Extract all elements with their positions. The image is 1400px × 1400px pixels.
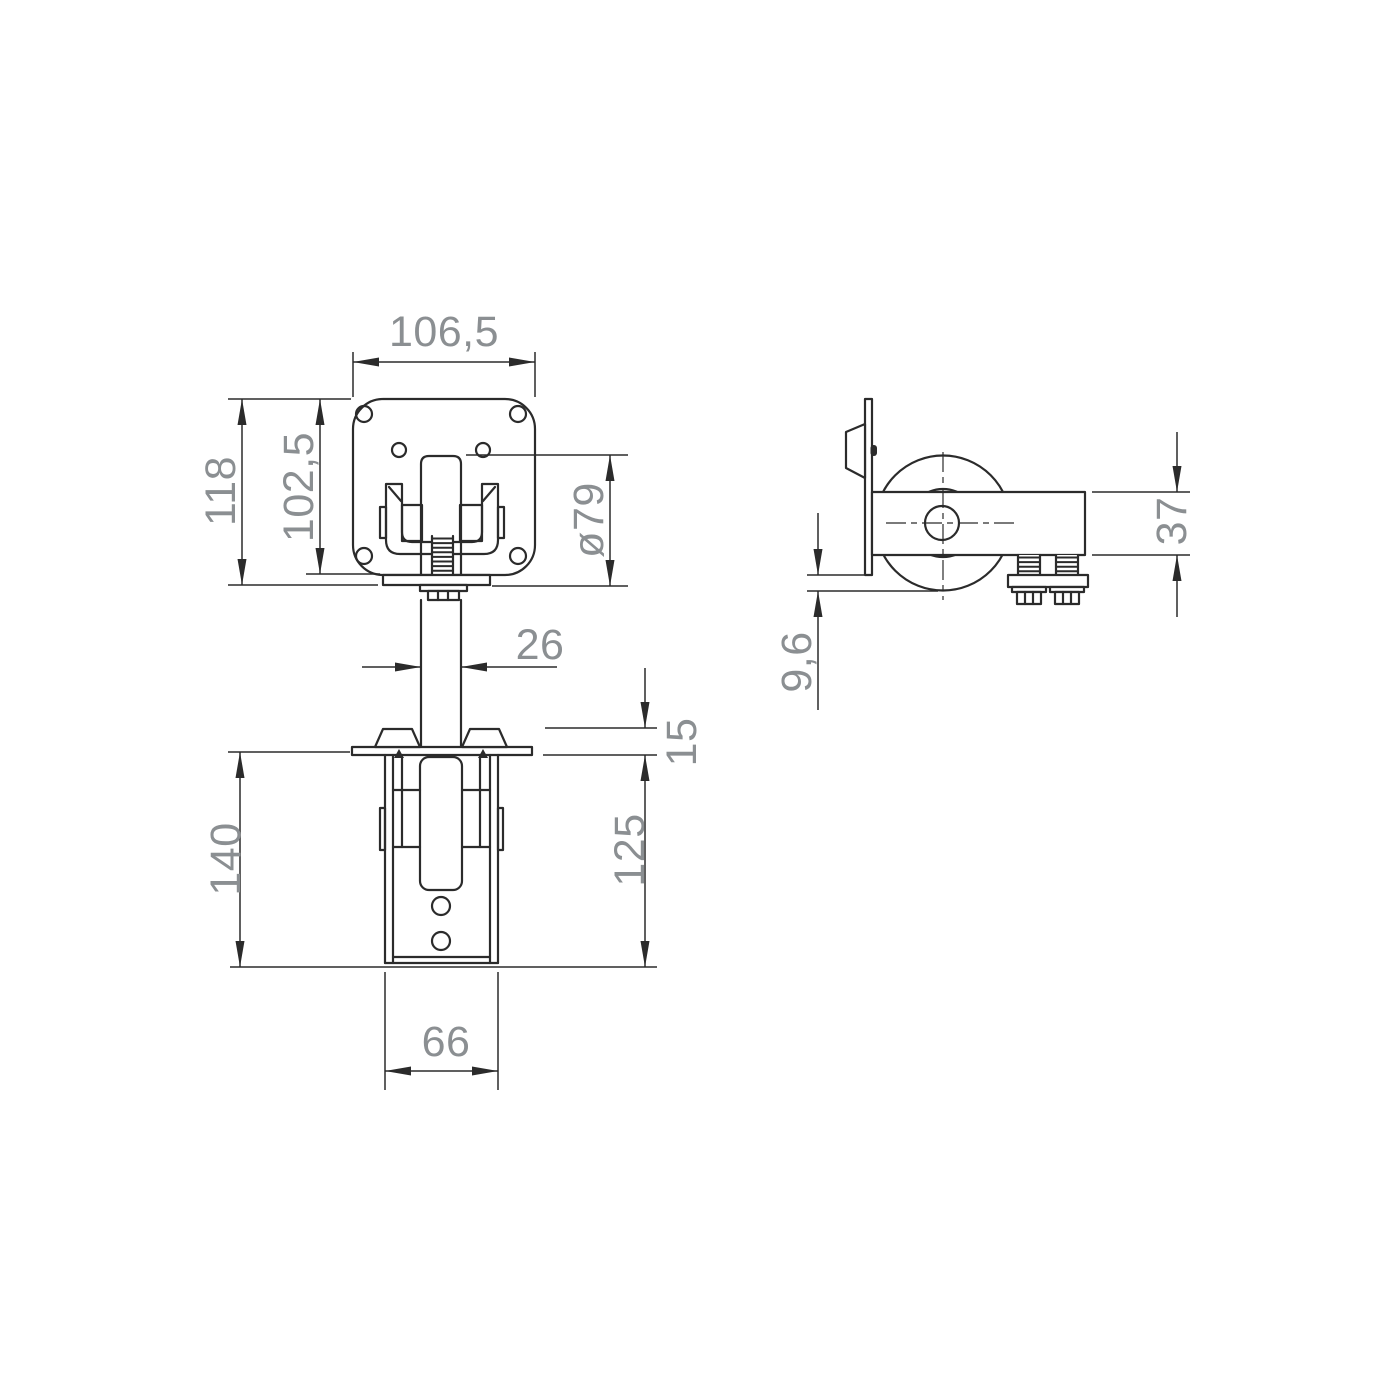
- base-plate: [352, 747, 532, 755]
- front-view: [353, 399, 535, 600]
- hex-nut: [428, 591, 459, 600]
- stud-bolts: [1018, 555, 1078, 575]
- technical-drawing: 106,5 118 102,5 ø79 26: [0, 0, 1400, 1400]
- dim-bottom-overall-height-label: 140: [202, 822, 250, 895]
- roller-section-lines: [393, 757, 490, 847]
- weld-mark: [871, 445, 878, 456]
- dim-roller-diameter-label: ø79: [565, 482, 613, 558]
- dim-stem-width-label: 26: [516, 621, 565, 669]
- side-view-dimensions: 37 9,6: [773, 432, 1196, 710]
- washer-bar: [383, 575, 490, 585]
- dim-bottom-plate-height-label: 15: [658, 718, 706, 767]
- axle-tab-right-bottom: [498, 808, 503, 850]
- hex-nut-right: [1050, 587, 1084, 604]
- bottom-view: [352, 729, 532, 963]
- dim-bottom-body-width-label: 66: [422, 1018, 471, 1066]
- dim-front-inner-height-label: 102,5: [275, 432, 323, 542]
- stem-slot: [420, 757, 462, 890]
- dim-arm-height-label: 37: [1148, 497, 1196, 546]
- adjust-hole-upper: [432, 897, 450, 915]
- dome-nut-left: [375, 729, 420, 747]
- dim-front-overall-height-label: 118: [197, 456, 245, 526]
- bottom-view-dimensions: 140 15 125 66: [202, 668, 706, 1090]
- threaded-rod: [432, 536, 453, 575]
- dim-plate-offset-label: 9,6: [773, 631, 821, 692]
- clamp-bar: [1008, 575, 1088, 587]
- side-view: [846, 399, 1088, 604]
- axle-tab-left-bottom: [380, 808, 385, 850]
- bent-tab: [846, 424, 865, 478]
- dome-nut-right: [462, 729, 507, 747]
- dim-front-plate-width-label: 106,5: [389, 308, 499, 356]
- stem-extension: [421, 600, 461, 747]
- dim-bottom-body-height-label: 125: [606, 813, 654, 886]
- adjust-hole-lower: [432, 932, 450, 950]
- hex-nut-left: [1012, 587, 1046, 604]
- drawing-canvas: 106,5 118 102,5 ø79 26: [0, 0, 1400, 1400]
